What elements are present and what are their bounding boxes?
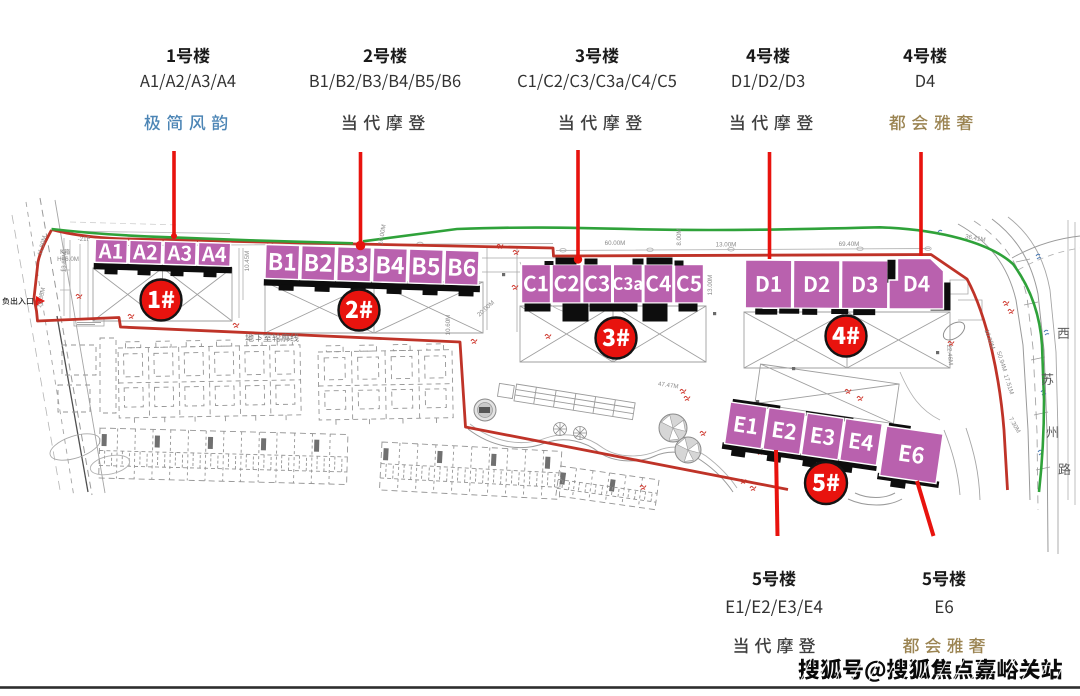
svg-text:10.60M: 10.60M — [445, 315, 452, 336]
svg-text:H=6.0M: H=6.0M — [57, 256, 79, 263]
svg-text:-21F: -21F — [78, 236, 91, 243]
svg-text:69.40M: 69.40M — [839, 241, 860, 248]
svg-text:13.00M: 13.00M — [716, 242, 737, 249]
svg-text:8.00M: 8.00M — [676, 228, 683, 245]
svg-text:10.45M: 10.45M — [244, 251, 251, 272]
svg-text:13.00M: 13.00M — [707, 275, 714, 296]
svg-text:60.00M: 60.00M — [605, 240, 626, 247]
